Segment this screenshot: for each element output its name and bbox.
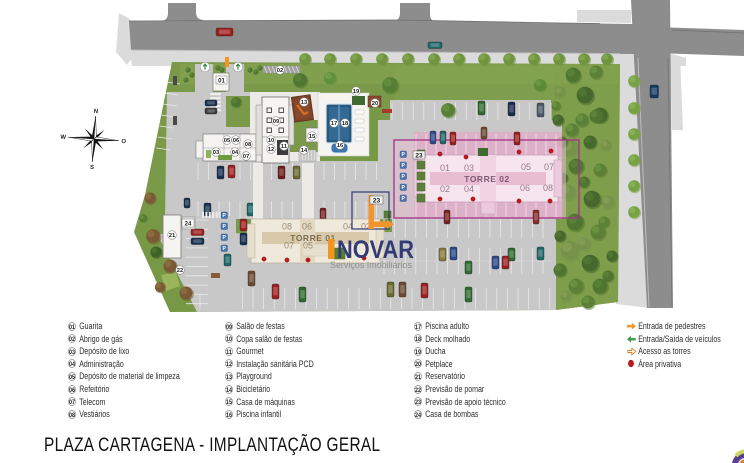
svg-text:11: 11 xyxy=(281,144,288,150)
svg-text:06: 06 xyxy=(233,138,240,144)
svg-text:04: 04 xyxy=(232,150,239,156)
svg-text:W: W xyxy=(60,135,66,141)
svg-text:13: 13 xyxy=(301,100,308,106)
svg-text:02: 02 xyxy=(440,184,450,194)
svg-text:14: 14 xyxy=(301,148,308,154)
svg-text:O: O xyxy=(121,139,126,145)
svg-text:04: 04 xyxy=(464,184,474,194)
svg-text:19: 19 xyxy=(353,89,360,95)
svg-text:03: 03 xyxy=(213,150,220,156)
svg-text:15: 15 xyxy=(309,134,316,140)
svg-text:06: 06 xyxy=(302,222,312,232)
svg-text:18: 18 xyxy=(342,121,349,127)
svg-text:TORRE 02: TORRE 02 xyxy=(464,174,509,184)
svg-text:01: 01 xyxy=(218,78,225,84)
svg-text:05: 05 xyxy=(224,138,231,144)
svg-text:N: N xyxy=(94,109,99,115)
svg-text:07: 07 xyxy=(243,154,249,160)
svg-text:08: 08 xyxy=(245,142,252,148)
svg-text:17: 17 xyxy=(331,121,337,127)
svg-text:09: 09 xyxy=(273,119,280,125)
svg-text:23: 23 xyxy=(373,198,381,205)
svg-text:16: 16 xyxy=(337,143,344,149)
svg-text:02: 02 xyxy=(277,68,283,74)
svg-text:01: 01 xyxy=(440,163,450,173)
svg-text:12: 12 xyxy=(268,147,274,153)
svg-text:10: 10 xyxy=(268,138,274,144)
svg-text:05: 05 xyxy=(521,162,531,172)
svg-text:08: 08 xyxy=(543,183,553,193)
svg-text:07: 07 xyxy=(544,162,554,172)
svg-text:S: S xyxy=(90,165,94,171)
svg-text:21: 21 xyxy=(169,233,176,239)
svg-text:23: 23 xyxy=(415,153,423,160)
svg-text:03: 03 xyxy=(464,163,474,173)
svg-text:06: 06 xyxy=(520,183,530,193)
svg-text:22: 22 xyxy=(177,268,183,274)
svg-text:24: 24 xyxy=(185,222,192,228)
svg-text:Serviços Imobiliários: Serviços Imobiliários xyxy=(330,260,413,270)
svg-text:20: 20 xyxy=(372,101,378,107)
svg-text:08: 08 xyxy=(282,222,292,232)
